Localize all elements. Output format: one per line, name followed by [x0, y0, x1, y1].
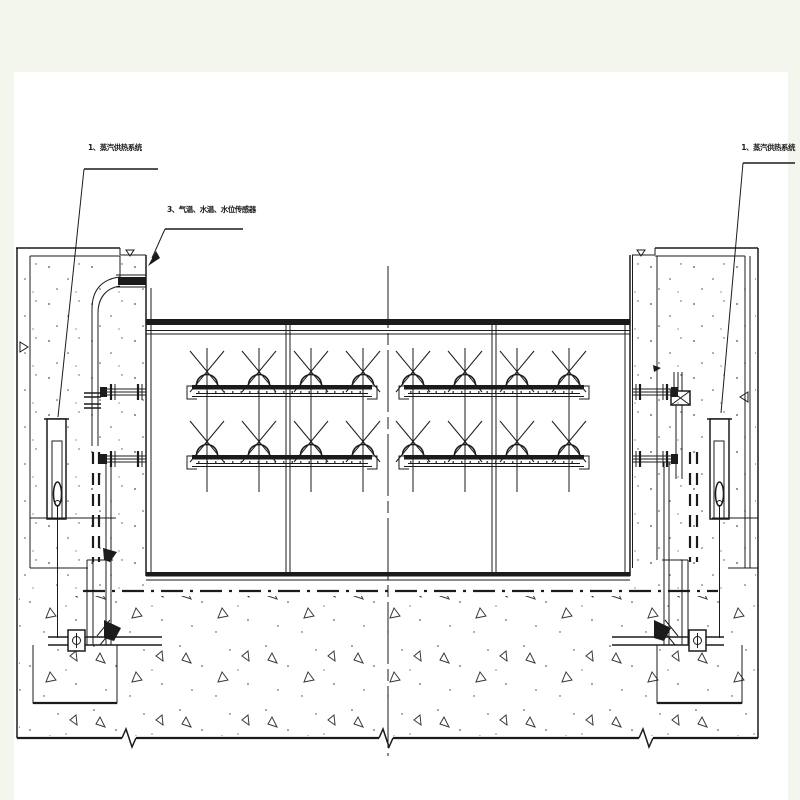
steam-pipe-connection [118, 277, 146, 285]
label-steam-right-text: 1、蒸汽供热系统 [741, 142, 796, 152]
label-sensors-text: 3、气温、水温、水位传感器 [167, 204, 257, 214]
label-steam-left-text: 1、蒸汽供热系统 [88, 142, 143, 152]
engineering-drawing: 1、蒸汽供热系统 3、气温、水温、水位传感器 1、蒸汽供热系统 [0, 0, 800, 800]
